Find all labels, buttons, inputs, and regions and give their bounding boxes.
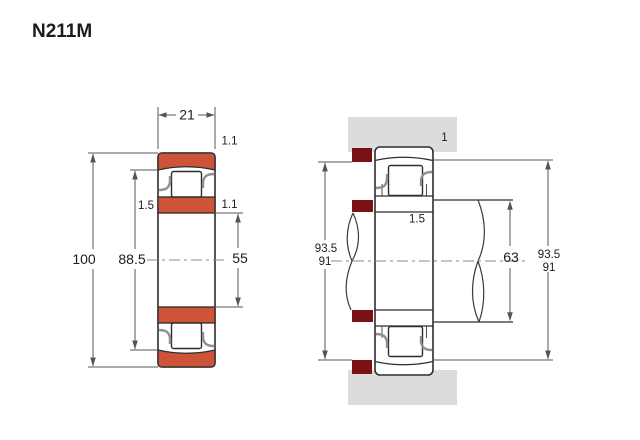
- shaft-abutment-label: 63: [503, 249, 519, 265]
- mounted-roller-bottom: [389, 327, 423, 357]
- arrowhead: [90, 154, 96, 163]
- left-abutment-max-label: 93.5: [315, 243, 337, 255]
- shaft-fillet-label: 1.5: [409, 214, 425, 226]
- bearing-drawing-page: N211M 21: [0, 0, 640, 440]
- shaft-abutment-ring-top: [352, 200, 373, 212]
- arrowhead: [507, 201, 513, 210]
- arrowhead: [322, 351, 328, 360]
- arrowhead: [132, 171, 138, 180]
- inner-ring-top: [158, 197, 215, 213]
- left-abutment-min-label: 91: [319, 256, 332, 268]
- arrowhead: [545, 161, 551, 170]
- bore-diameter-label: 55: [232, 250, 248, 266]
- arrowhead: [207, 112, 215, 118]
- right-abutment-min-label: 91: [543, 262, 556, 274]
- width-dim-label: 21: [179, 107, 195, 123]
- arrowhead: [132, 341, 138, 350]
- flange-chamfer-label: 1.5: [138, 200, 154, 212]
- housing-abutment-ring-top: [352, 148, 372, 162]
- outer-diameter-label: 100: [72, 251, 96, 267]
- mounted-view: 93.5 91 63 93.5 91 1 1.5: [315, 117, 560, 405]
- housing-abutment-ring-bottom: [352, 360, 372, 374]
- arrowhead: [235, 214, 241, 223]
- right-abutment-max-label: 93.5: [538, 249, 560, 261]
- raceway-diameter-label: 88.5: [118, 251, 145, 267]
- roller-top: [172, 172, 202, 198]
- shaft-abutment-ring-bottom: [352, 310, 373, 322]
- arrowhead: [235, 298, 241, 307]
- inner-ring-bottom: [158, 307, 215, 323]
- drawing-canvas: N211M 21: [0, 0, 640, 440]
- page-title: N211M: [32, 21, 92, 42]
- arrowhead: [507, 312, 513, 321]
- section-view: 21 100 88.5 55 1: [72, 107, 248, 368]
- arrowhead: [545, 351, 551, 360]
- od-chamfer-label: 1.1: [222, 136, 238, 148]
- housing-fillet-label: 1: [441, 132, 447, 144]
- roller-bottom: [172, 323, 202, 349]
- arrowhead: [90, 358, 96, 367]
- dimension-right-abutment: [434, 160, 553, 360]
- bore-chamfer-label: 1.1: [222, 199, 238, 211]
- arrowhead: [159, 112, 167, 118]
- mounted-roller-top: [389, 166, 423, 196]
- arrowhead: [322, 163, 328, 172]
